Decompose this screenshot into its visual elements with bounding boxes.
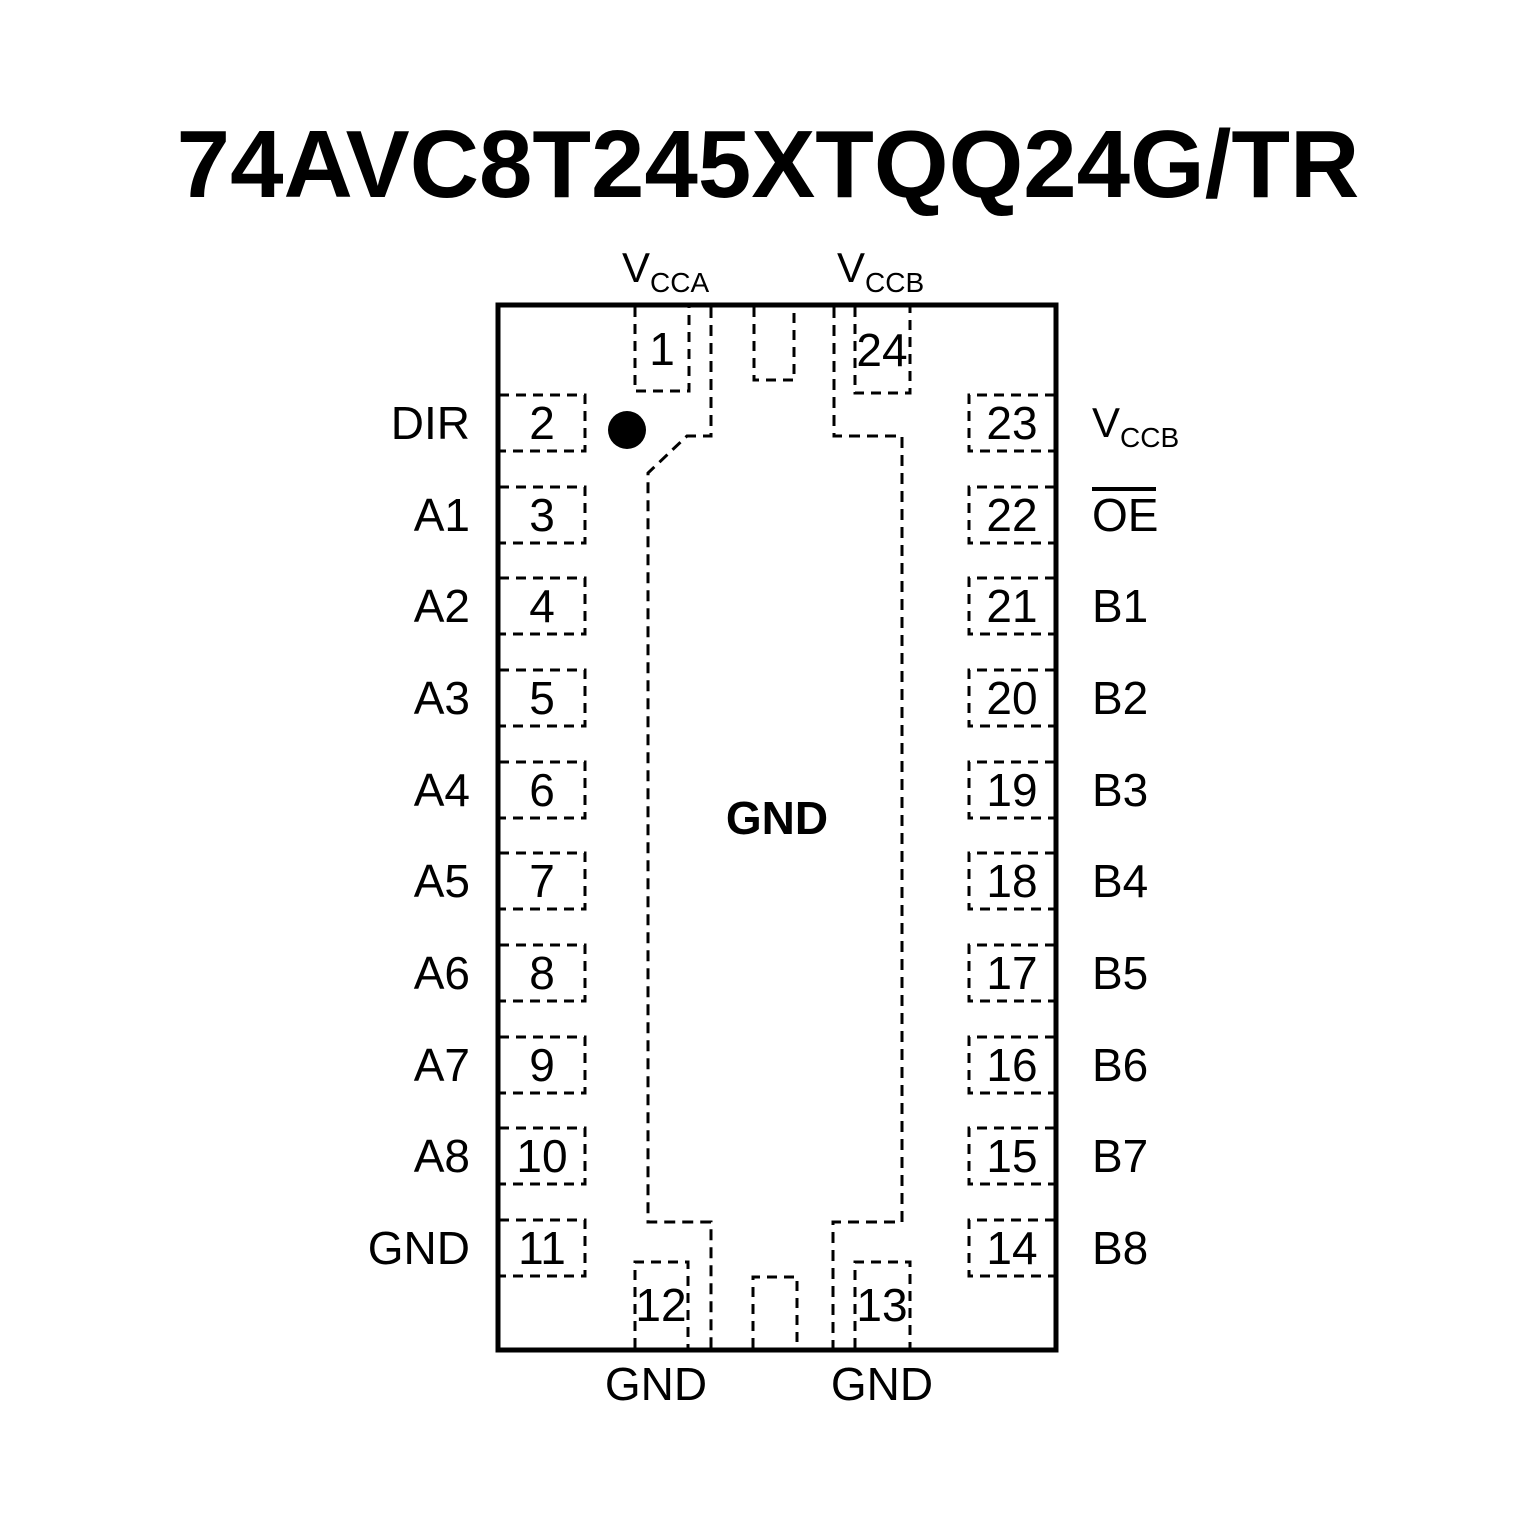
pin-label-gnd-bottom-right: GND [831,1358,933,1410]
pin-label-b3: B3 [1092,764,1148,816]
pin-number-12: 12 [635,1279,686,1331]
pin-label-b7: B7 [1092,1130,1148,1182]
pin-label-a3: A3 [414,672,470,724]
pin-label-b1: B1 [1092,580,1148,632]
pinout-page: 74AVC8T245XTQQ24G/TR GND 1 24 VCCA VCCB … [0,0,1535,1535]
pin-number-3: 3 [529,489,555,541]
pin-number-9: 9 [529,1039,555,1091]
pin-label-a5: A5 [414,855,470,907]
pin-number-20: 20 [986,672,1037,724]
pin-number-8: 8 [529,947,555,999]
pin-number-14: 14 [986,1222,1037,1274]
pin-number-22: 22 [986,489,1037,541]
pin-label-a6: A6 [414,947,470,999]
pin-number-4: 4 [529,580,555,632]
center-pad-label: GND [726,792,828,844]
pin-label-a1: A1 [414,489,470,541]
pin-1-indicator-dot [608,411,646,449]
pinout-diagram: 74AVC8T245XTQQ24G/TR GND 1 24 VCCA VCCB … [0,0,1535,1535]
pin-label-b8: B8 [1092,1222,1148,1274]
pin-number-17: 17 [986,947,1037,999]
pin-number-6: 6 [529,764,555,816]
pin-label-vccb: VCCB [1092,399,1179,453]
vcca-label: VCCA [622,244,709,298]
pin-number-15: 15 [986,1130,1037,1182]
pin-label-b2: B2 [1092,672,1148,724]
pin-number-1: 1 [649,323,675,375]
pin-label-a4: A4 [414,764,470,816]
pin-label-dir: DIR [391,397,470,449]
pin-label-b4: B4 [1092,855,1148,907]
pin-number-13: 13 [856,1279,907,1331]
pin-number-11: 11 [518,1222,566,1274]
pin-number-2: 2 [529,397,555,449]
pin-number-16: 16 [986,1039,1037,1091]
pin-number-21: 21 [986,580,1037,632]
vccb-top-label: VCCB [837,244,924,298]
pin-label-a2: A2 [414,580,470,632]
pin-label-b5: B5 [1092,947,1148,999]
part-number-title: 74AVC8T245XTQQ24G/TR [177,111,1360,218]
pin-number-24: 24 [856,324,907,376]
pin-number-5: 5 [529,672,555,724]
pin-label-a8: A8 [414,1130,470,1182]
pin-number-7: 7 [529,855,555,907]
pin-label-gnd-left: GND [368,1222,470,1274]
pin-number-23: 23 [986,397,1037,449]
pin-number-19: 19 [986,764,1037,816]
pin-label-gnd-bottom-left: GND [605,1358,707,1410]
pin-label-oe: OE [1092,489,1158,541]
pin-number-18: 18 [986,855,1037,907]
pin-label-b6: B6 [1092,1039,1148,1091]
pin-label-a7: A7 [414,1039,470,1091]
pin-number-10: 10 [516,1130,567,1182]
